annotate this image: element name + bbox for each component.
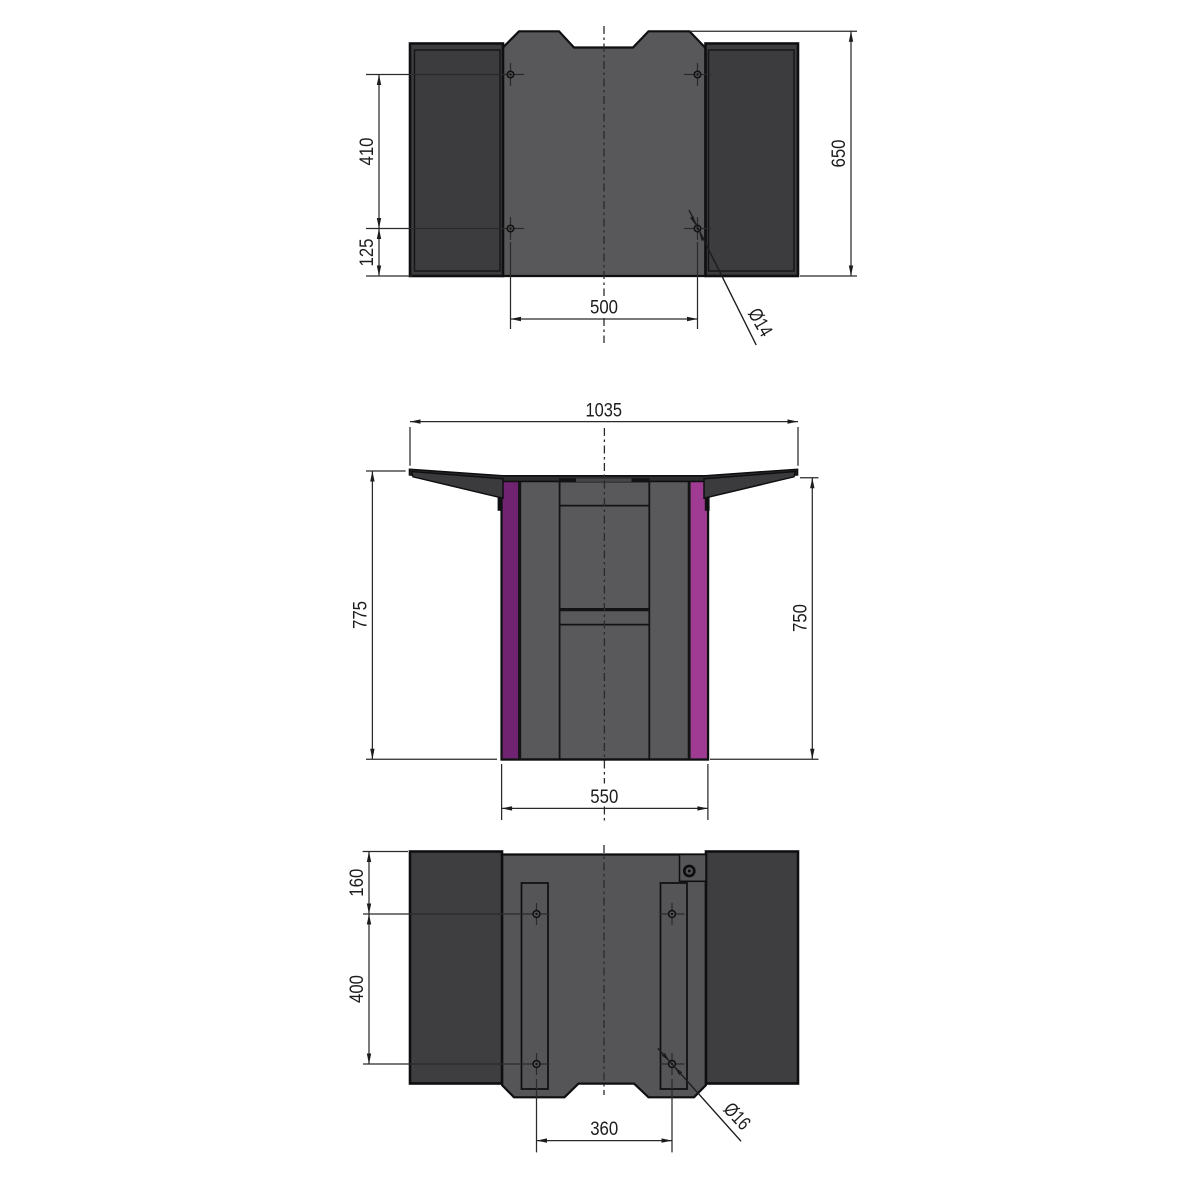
- svg-text:775: 775: [349, 601, 371, 629]
- svg-text:1035: 1035: [586, 399, 623, 421]
- svg-text:650: 650: [828, 139, 850, 167]
- svg-text:550: 550: [590, 786, 618, 808]
- svg-text:500: 500: [590, 297, 618, 319]
- svg-text:360: 360: [590, 1118, 618, 1140]
- svg-text:160: 160: [346, 869, 368, 897]
- svg-text:125: 125: [356, 238, 378, 266]
- svg-text:400: 400: [346, 975, 368, 1003]
- svg-text:750: 750: [789, 604, 811, 632]
- svg-text:410: 410: [356, 137, 378, 165]
